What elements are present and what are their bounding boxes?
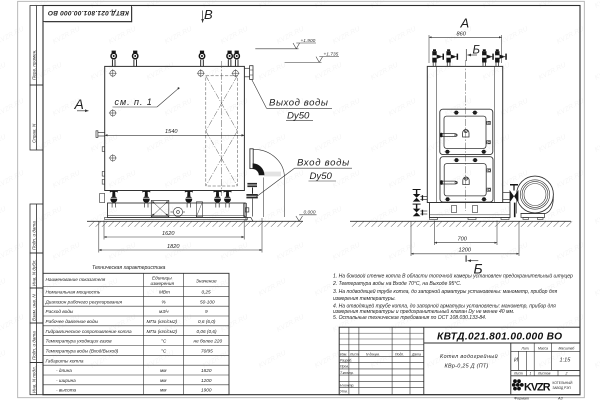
svg-text:И: И xyxy=(514,358,518,364)
svg-text:Листов: Листов xyxy=(537,372,551,376)
svg-text:0,6 (6,0): 0,6 (6,0) xyxy=(198,319,216,324)
svg-text:Пров.: Пров. xyxy=(340,365,349,369)
svg-text:70/95: 70/95 xyxy=(201,349,213,354)
svg-text:ЗАВОД РЭП: ЗАВОД РЭП xyxy=(553,386,572,390)
svg-text:В: В xyxy=(204,7,213,22)
svg-text:1820: 1820 xyxy=(167,244,180,250)
svg-text:Значение: Значение xyxy=(196,279,217,284)
svg-text:МПа (кгс/см2): МПа (кгс/см2) xyxy=(147,329,178,334)
svg-text:МВт: МВт xyxy=(159,290,170,295)
svg-text:860: 860 xyxy=(457,31,467,37)
svg-text:1200: 1200 xyxy=(459,248,472,254)
svg-text:мм: мм xyxy=(160,368,167,373)
svg-text:Лит.: Лит. xyxy=(521,346,530,350)
svg-text:КОТЕЛЬНЫЙ: КОТЕЛЬНЫЙ xyxy=(553,381,574,385)
svg-text:КВТД.021.801.00.000 ВО: КВТД.021.801.00.000 ВО xyxy=(437,332,562,343)
svg-text:измерения: измерения xyxy=(151,281,175,286)
svg-text:Изм.: Изм. xyxy=(340,352,347,356)
svg-text:- ширина: - ширина xyxy=(56,378,76,383)
svg-text:3. На подводящей трубе котла,: 3. На подводящей трубе котла, до запорно… xyxy=(333,288,557,295)
svg-text:Выход воды: Выход воды xyxy=(269,98,328,109)
svg-text:Подп.: Подп. xyxy=(395,352,404,356)
svg-text:+1.735: +1.735 xyxy=(324,52,339,58)
svg-text:KVZR: KVZR xyxy=(524,381,551,393)
svg-text:0,25: 0,25 xyxy=(202,290,212,295)
svg-text:Масштаб: Масштаб xyxy=(559,346,575,350)
svg-text:см. п. 1: см. п. 1 xyxy=(115,97,153,107)
svg-text:Масса: Масса xyxy=(538,346,548,350)
svg-text:700: 700 xyxy=(458,237,468,243)
svg-text:Котел водогрейный: Котел водогрейный xyxy=(440,353,498,360)
svg-text:Единицы: Единицы xyxy=(152,276,172,281)
svg-text:0,06 (0,6): 0,06 (0,6) xyxy=(197,329,218,334)
svg-text:9: 9 xyxy=(205,309,208,314)
svg-text:1:15: 1:15 xyxy=(560,357,572,363)
svg-text:1540: 1540 xyxy=(165,129,178,135)
svg-text:измерения температуры.: измерения температуры. xyxy=(333,296,396,302)
svg-text:1620: 1620 xyxy=(162,231,175,237)
svg-text:не более 220: не более 220 xyxy=(194,339,223,344)
svg-text:1900: 1900 xyxy=(201,388,212,393)
svg-text:+1.900: +1.900 xyxy=(301,38,316,44)
svg-text:50-100: 50-100 xyxy=(200,299,215,304)
svg-text:Перв. примен.: Перв. примен. xyxy=(31,49,36,80)
svg-text:Лист: Лист xyxy=(349,352,359,356)
svg-text:Лист: Лист xyxy=(513,372,523,376)
svg-text:Справ. N: Справ. N xyxy=(31,123,36,143)
svg-text:А: А xyxy=(460,16,470,31)
svg-text:Взам. инв. N: Взам. инв. N xyxy=(31,294,36,321)
svg-text:Т.контр.: Т.контр. xyxy=(340,371,354,375)
svg-text:Расход воды: Расход воды xyxy=(46,309,74,314)
svg-text:1200: 1200 xyxy=(201,378,212,383)
svg-text:Н.контр.: Н.контр. xyxy=(340,383,354,387)
svg-text:%: % xyxy=(162,299,166,304)
svg-text:Габариты котла: Габариты котла xyxy=(46,358,84,363)
svg-text:КВТД.021.801.00.000 ВО: КВТД.021.801.00.000 ВО xyxy=(47,9,129,16)
svg-text:1820: 1820 xyxy=(201,368,212,373)
svg-text:Dy50: Dy50 xyxy=(287,111,310,122)
svg-text:Температура уходящих газов: Температура уходящих газов xyxy=(46,339,113,344)
svg-text:КВр-0,25 Д (ПТ): КВр-0,25 Д (ПТ) xyxy=(445,364,489,370)
svg-text:А3: А3 xyxy=(557,396,564,400)
svg-text:Утв.: Утв. xyxy=(340,390,348,394)
svg-text:N докум.: N докум. xyxy=(366,352,380,356)
svg-text:МПа (кгс/см2): МПа (кгс/см2) xyxy=(147,319,178,324)
svg-text:°С: °С xyxy=(161,339,167,344)
svg-text:Номинальная мощность: Номинальная мощность xyxy=(46,290,101,295)
svg-text:Рабочее давление воды: Рабочее давление воды xyxy=(46,319,99,324)
svg-text:Инв. N подл.: Инв. N подл. xyxy=(31,366,36,393)
svg-text:Подп. и дата: Подп. и дата xyxy=(31,331,36,360)
svg-text:Подп. и дата: Подп. и дата xyxy=(31,221,36,250)
svg-text:Инв. N дубл.: Инв. N дубл. xyxy=(31,259,36,286)
svg-text:Dy50: Dy50 xyxy=(310,171,333,182)
svg-text:2: 2 xyxy=(565,372,568,376)
svg-text:Гидравлическое сопротивление к: Гидравлическое сопротивление котла xyxy=(46,329,133,334)
svg-text:Разраб.: Разраб. xyxy=(340,358,352,362)
svg-text:2. Температура воды на Входе: 2. Температура воды на Входе 70°С, на Вы… xyxy=(332,281,461,287)
svg-text:5. Остальные технические треб: 5. Остальные технические требования по О… xyxy=(333,315,486,321)
svg-text:- длина: - длина xyxy=(56,368,72,373)
svg-text:Вход воды: Вход воды xyxy=(297,158,350,169)
svg-text:°С: °С xyxy=(161,349,167,354)
svg-text:Наименование показателя: Наименование показателя xyxy=(46,277,106,282)
svg-text:мм: мм xyxy=(160,378,167,383)
svg-text:Техническая характеристика: Техническая характеристика xyxy=(92,265,166,271)
svg-text:Дата: Дата xyxy=(411,352,421,356)
svg-text:1. На боковой стенке котла В: 1. На боковой стенке котла В области топ… xyxy=(333,272,573,279)
svg-text:м3/ч: м3/ч xyxy=(159,309,169,314)
svg-text:Температура воды (Вход/Выход): Температура воды (Вход/Выход) xyxy=(46,349,119,354)
svg-text:А: А xyxy=(74,96,84,112)
svg-text:Б: Б xyxy=(473,45,481,57)
svg-text:Формат: Формат xyxy=(514,396,529,400)
svg-text:1: 1 xyxy=(530,372,532,376)
svg-text:0.000: 0.000 xyxy=(304,209,316,215)
svg-text:Диапазон рабочего регулировани: Диапазон рабочего регулирования xyxy=(45,299,123,304)
svg-text:мм: мм xyxy=(160,388,167,393)
svg-text:- высота: - высота xyxy=(56,388,77,393)
